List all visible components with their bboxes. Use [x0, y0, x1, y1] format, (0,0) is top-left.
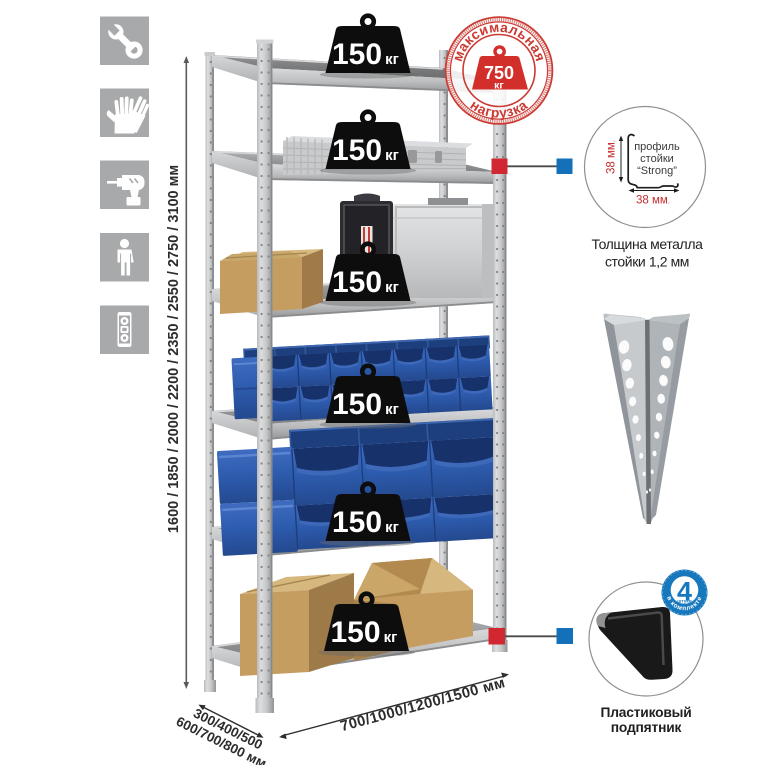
svg-text:1600 / 1850 / 2000 / 2200 / 23: 1600 / 1850 / 2000 / 2200 / 2350 / 2550 … [166, 165, 182, 533]
svg-text:Толщина металла: Толщина металла [592, 236, 704, 252]
svg-text:штуки: штуки [677, 600, 692, 605]
svg-text:стойки: стойки [640, 153, 674, 165]
svg-text:подпятник: подпятник [611, 720, 682, 735]
svg-text:700/1000/1200/1500 мм: 700/1000/1200/1500 мм [339, 675, 507, 735]
svg-text:профиль: профиль [634, 141, 680, 153]
svg-text:стойки 1,2 мм: стойки 1,2 мм [605, 254, 689, 270]
svg-text:38 мм.: 38 мм. [636, 195, 670, 207]
svg-text:Пластиковый: Пластиковый [601, 705, 692, 720]
svg-text:кг: кг [494, 80, 504, 92]
svg-text:38 мм.: 38 мм. [606, 140, 618, 174]
svg-text:“Strong”: “Strong” [637, 165, 677, 177]
